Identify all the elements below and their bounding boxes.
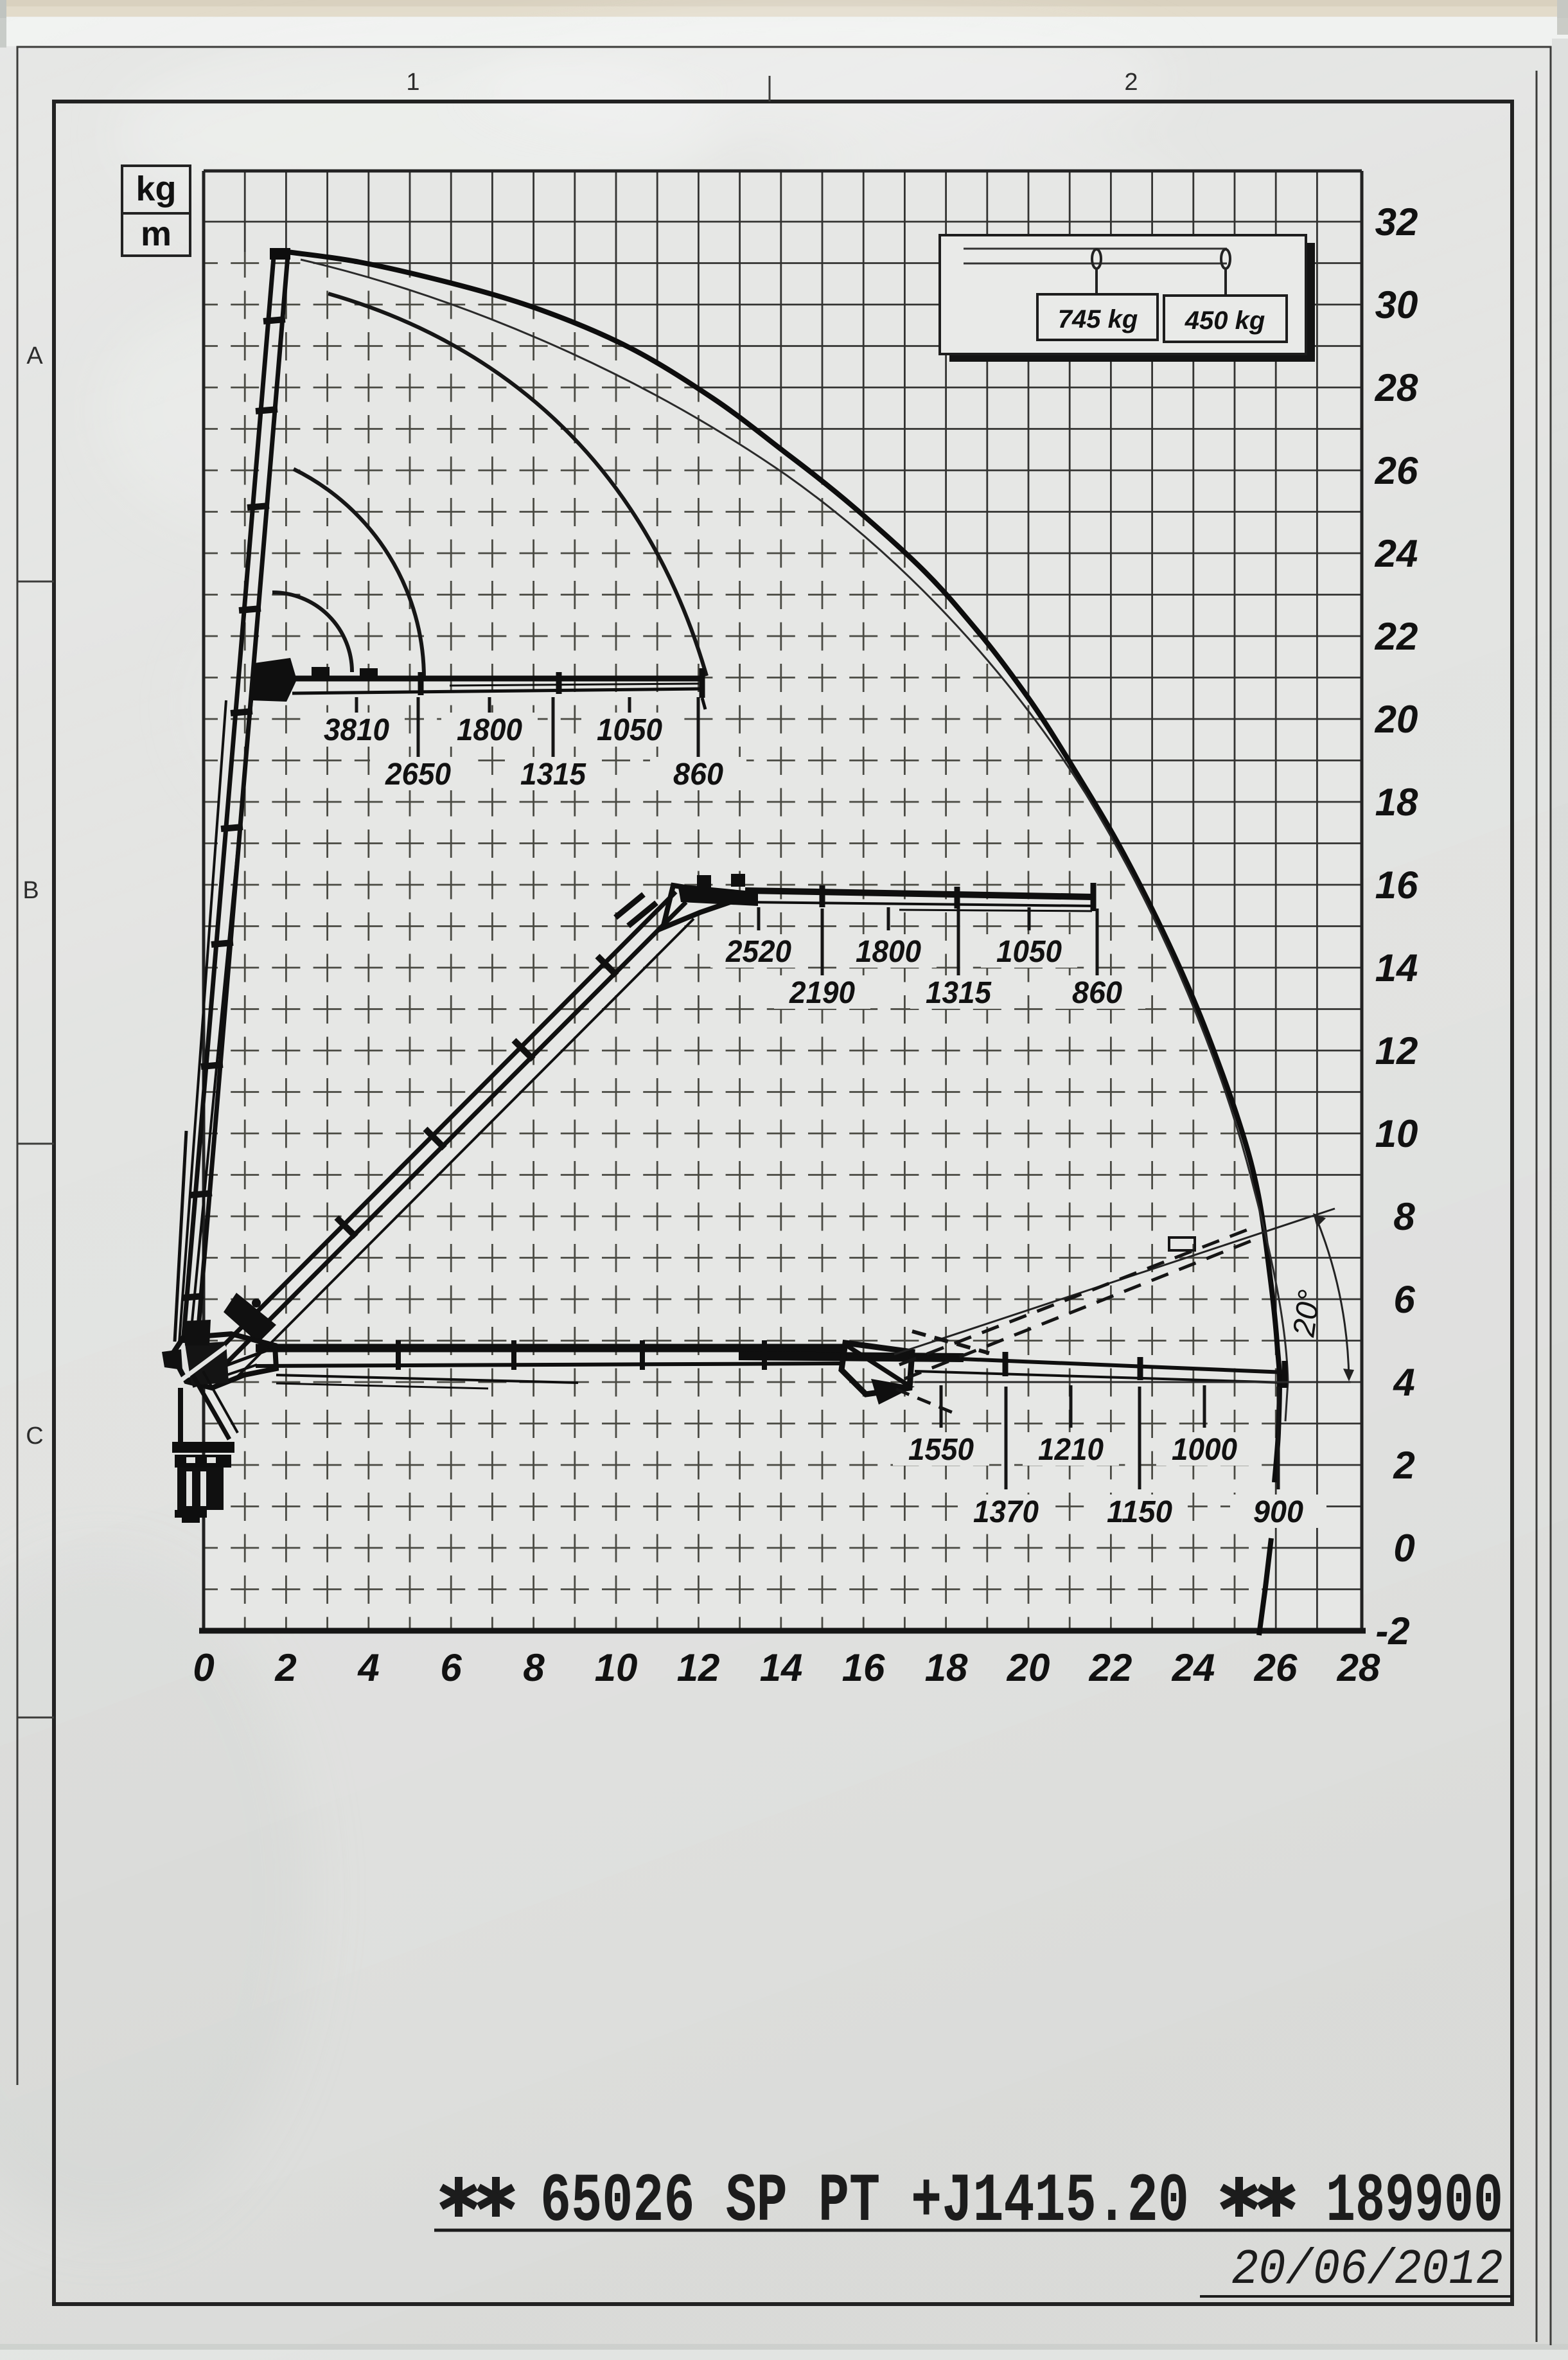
svg-text:2650: 2650 bbox=[385, 758, 451, 792]
svg-text:18: 18 bbox=[925, 1646, 968, 1689]
svg-text:860: 860 bbox=[1072, 976, 1122, 1010]
svg-text:450 kg: 450 kg bbox=[1185, 306, 1265, 335]
svg-text:2: 2 bbox=[1124, 69, 1138, 96]
svg-text:20: 20 bbox=[1375, 698, 1418, 741]
svg-text:16: 16 bbox=[1375, 864, 1418, 907]
svg-text:8: 8 bbox=[1393, 1195, 1415, 1238]
svg-text:3810: 3810 bbox=[324, 713, 389, 747]
svg-text:C: C bbox=[26, 1423, 43, 1450]
svg-text:12: 12 bbox=[677, 1646, 720, 1689]
svg-text:20/06/2012: 20/06/2012 bbox=[1231, 2242, 1503, 2298]
svg-text:1800: 1800 bbox=[457, 713, 522, 747]
svg-text:28: 28 bbox=[1337, 1646, 1380, 1689]
svg-text:20: 20 bbox=[1007, 1646, 1050, 1689]
svg-text:m: m bbox=[141, 215, 172, 253]
svg-text:B: B bbox=[22, 877, 39, 904]
svg-text:1370: 1370 bbox=[973, 1495, 1039, 1529]
svg-text:1050: 1050 bbox=[996, 935, 1062, 969]
svg-text:22: 22 bbox=[1375, 615, 1418, 658]
svg-text:16: 16 bbox=[842, 1646, 885, 1689]
svg-text:2190: 2190 bbox=[789, 976, 855, 1010]
svg-text:28: 28 bbox=[1375, 366, 1418, 409]
svg-text:12: 12 bbox=[1375, 1029, 1418, 1072]
svg-text:4: 4 bbox=[357, 1646, 379, 1689]
svg-text:0: 0 bbox=[1393, 1527, 1414, 1570]
svg-text:1: 1 bbox=[406, 69, 419, 96]
svg-text:6: 6 bbox=[440, 1646, 462, 1689]
svg-text:1150: 1150 bbox=[1107, 1495, 1172, 1529]
svg-text:24: 24 bbox=[1172, 1646, 1215, 1689]
svg-text:22: 22 bbox=[1089, 1646, 1132, 1689]
svg-text:26: 26 bbox=[1254, 1646, 1298, 1689]
svg-text:14: 14 bbox=[760, 1646, 803, 1689]
svg-text:2: 2 bbox=[274, 1646, 296, 1689]
svg-text:745 kg: 745 kg bbox=[1058, 305, 1138, 333]
svg-text:4: 4 bbox=[1393, 1361, 1414, 1404]
svg-text:1000: 1000 bbox=[1172, 1433, 1237, 1467]
svg-text:kg: kg bbox=[136, 170, 176, 208]
svg-text:900: 900 bbox=[1253, 1495, 1303, 1529]
svg-text:8: 8 bbox=[523, 1646, 545, 1689]
svg-text:18: 18 bbox=[1375, 781, 1418, 824]
svg-text:860: 860 bbox=[673, 758, 723, 792]
svg-text:1210: 1210 bbox=[1038, 1433, 1104, 1467]
svg-text:2520: 2520 bbox=[725, 935, 791, 969]
svg-text:1315: 1315 bbox=[926, 976, 992, 1010]
svg-text:0: 0 bbox=[193, 1646, 214, 1689]
svg-text:14: 14 bbox=[1375, 946, 1418, 989]
svg-text:1800: 1800 bbox=[856, 935, 921, 969]
svg-text:10: 10 bbox=[1375, 1112, 1418, 1155]
svg-text:26: 26 bbox=[1375, 449, 1418, 492]
svg-text:10: 10 bbox=[595, 1646, 638, 1689]
svg-text:30: 30 bbox=[1375, 283, 1418, 326]
svg-text:1050: 1050 bbox=[597, 713, 662, 747]
svg-text:24: 24 bbox=[1375, 532, 1418, 575]
svg-text:20°: 20° bbox=[1287, 1288, 1327, 1339]
svg-text:2: 2 bbox=[1393, 1444, 1414, 1487]
svg-text:1550: 1550 bbox=[908, 1433, 974, 1467]
svg-text:32: 32 bbox=[1375, 200, 1418, 244]
svg-text:-2: -2 bbox=[1375, 1610, 1409, 1653]
svg-text:A: A bbox=[26, 342, 43, 369]
svg-text:1315: 1315 bbox=[520, 758, 586, 792]
svg-text:6: 6 bbox=[1393, 1278, 1415, 1321]
